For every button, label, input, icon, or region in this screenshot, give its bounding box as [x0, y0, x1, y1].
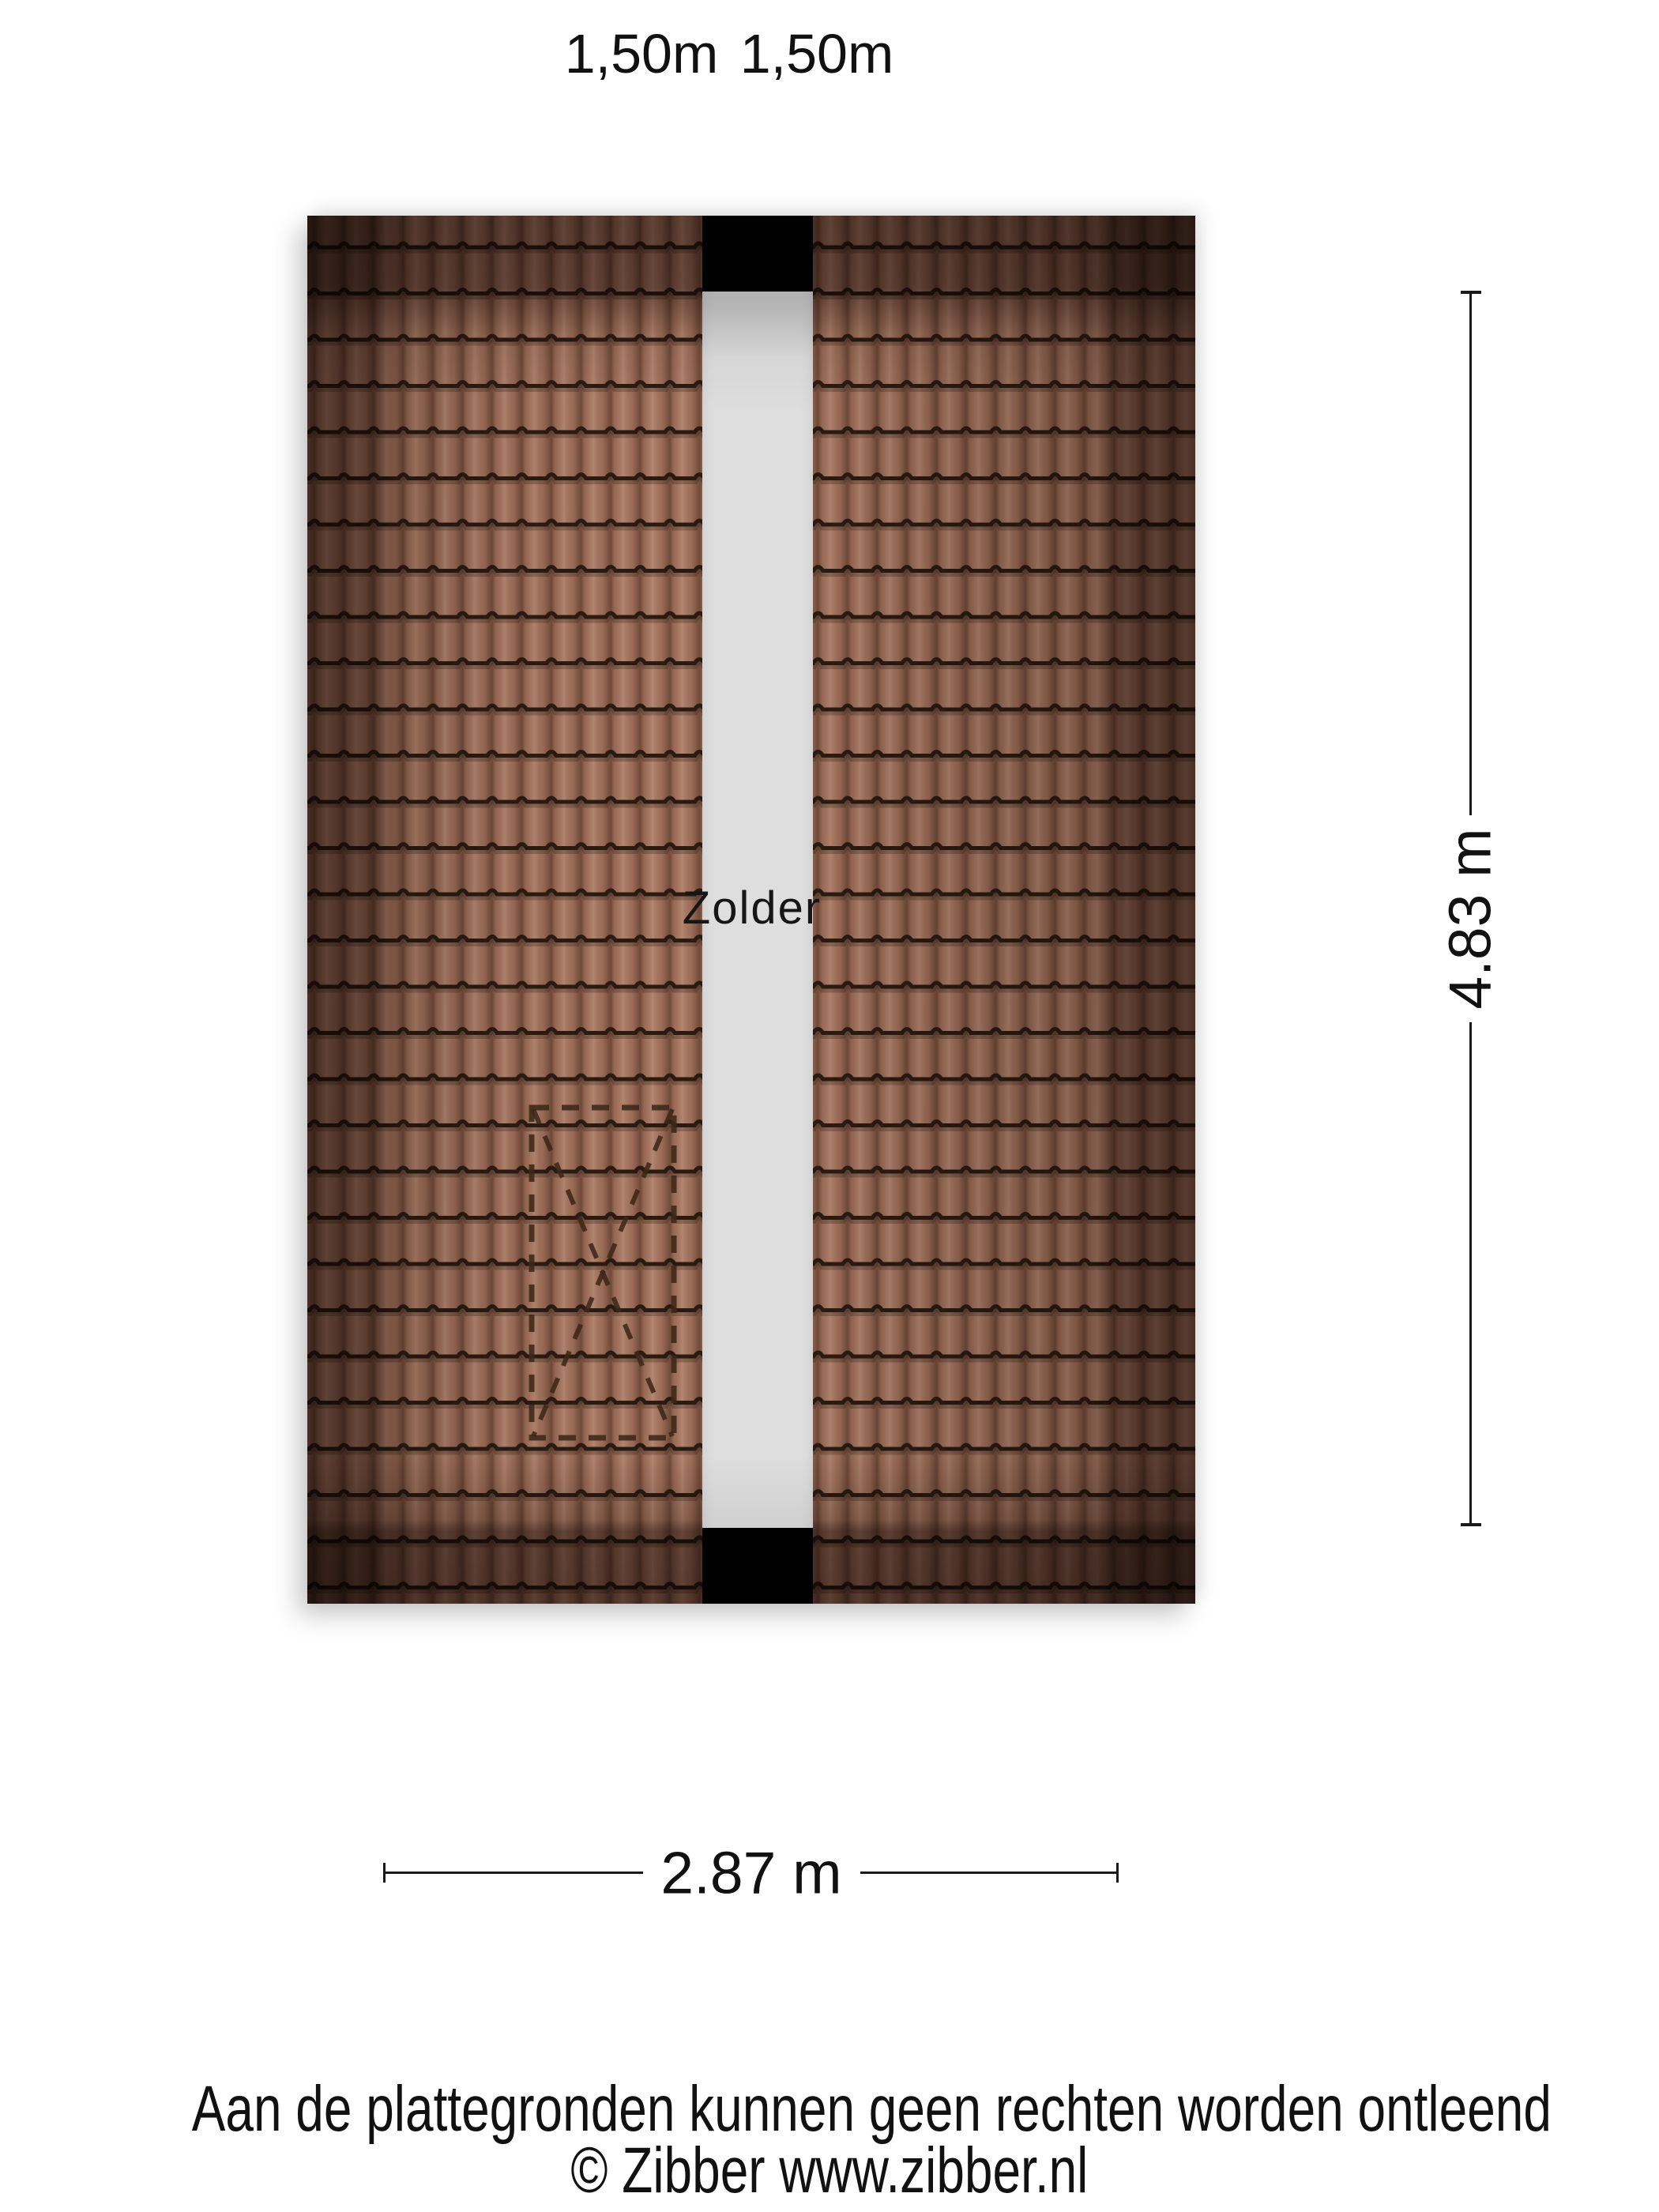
height-dim-line-lower: [1469, 1022, 1472, 1525]
width-dim-tick-right: [1116, 1863, 1119, 1883]
floorplan-canvas: 1,50m 1,50m: [0, 0, 1659, 2212]
width-dim-line-left: [384, 1872, 643, 1874]
copyright-text: © Zibber www.zibber.nl: [0, 2139, 1659, 2203]
height-dim-line-upper: [1469, 292, 1472, 815]
chimney-block-bottom: [702, 1528, 813, 1604]
width-dim-line-right: [860, 1872, 1118, 1874]
stair-opening-outline: [526, 1102, 679, 1443]
chimney-block-top: [702, 216, 813, 292]
disclaimer-text: Aan de plattegronden kunnen geen rechten…: [0, 2077, 1659, 2142]
width-label-right-roof: 1,50m: [740, 26, 894, 81]
height-dim-tick-bottom: [1461, 1523, 1481, 1526]
width-label-left-roof: 1,50m: [565, 26, 719, 81]
room-label: Zolder: [683, 886, 822, 931]
height-dim-label: 4.83 m: [1441, 828, 1500, 1009]
width-dim-label: 2.87 m: [660, 1844, 841, 1903]
